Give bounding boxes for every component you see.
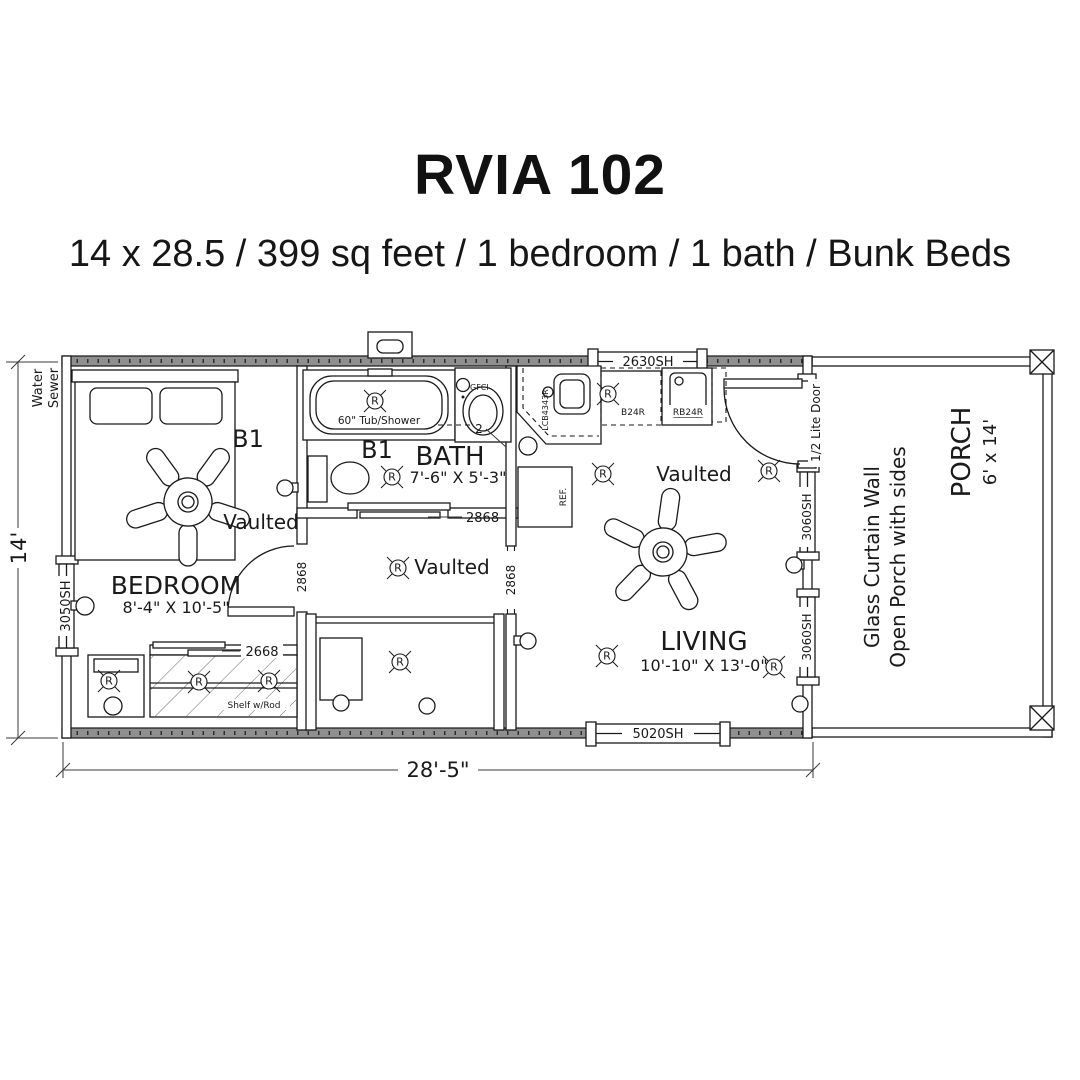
floor-plan-page: RVIA 102 14 x 28.5 / 399 sq feet / 1 bed… (0, 0, 1080, 1080)
bedroom-name: BEDROOM (111, 571, 242, 600)
floor-plan-drawing: 3050SH 2630SH 5020SH (0, 322, 1080, 792)
door-label-porch: 1/2 Lite Door (809, 384, 823, 462)
receptacle-symbol: R (597, 383, 619, 405)
svg-text:R: R (603, 650, 611, 663)
wall-sconce (277, 480, 298, 496)
tub-label: 60" Tub/Shower (338, 415, 421, 427)
window-label-3060sh-lower: 3060SH (800, 613, 814, 660)
refrigerator-label: REF. (559, 488, 569, 507)
living-vaulted-label: Vaulted (656, 462, 731, 486)
door-label-bedroom: 2868 (295, 562, 309, 593)
kitchen-corner-cabinet-label: LCB4343R (541, 389, 550, 431)
window-3060sh-lower: 3060SH (797, 589, 819, 685)
dimension-width: 28'-5" (56, 742, 820, 782)
receptacle-symbol: R (389, 651, 411, 673)
living-opening-label-group: 2868 (503, 554, 518, 606)
door-label-bath: 2868 (466, 511, 499, 526)
svg-text:R: R (394, 562, 402, 575)
svg-text:R: R (765, 465, 773, 478)
dimension-depth: 14' (6, 355, 58, 745)
window-label-3060sh-upper: 3060SH (800, 493, 814, 540)
svg-text:R: R (770, 661, 778, 674)
kitchen-corner-cabinet: LCB4343R (517, 366, 601, 455)
porch-note-line2: Open Porch with sides (886, 446, 910, 667)
svg-text:R: R (604, 388, 612, 401)
receptacle-symbol: R (258, 670, 280, 692)
porch-name: PORCH (947, 407, 977, 498)
bath-vanity (455, 368, 511, 442)
bath-bunk-label: B1 (361, 436, 393, 464)
trailer-hitch (368, 332, 412, 358)
porch-door: 1/2 Lite Door (724, 374, 823, 468)
svg-text:R: R (371, 395, 379, 408)
ceiling-fan (596, 478, 737, 624)
kitchen-cabinet-label: B24R (621, 408, 645, 418)
bath-callout-label: 2 (475, 422, 483, 436)
overall-width-label: 28'-5" (406, 758, 469, 782)
svg-text:R: R (388, 471, 396, 484)
receptacle-symbol: R (596, 645, 618, 667)
gfci-outlet-icon (457, 379, 470, 392)
svg-text:R: R (195, 676, 203, 689)
living-name: LIVING (660, 627, 747, 657)
water-sewer-note: Water Sewer (31, 367, 62, 408)
receptacle-symbol: R (763, 656, 785, 678)
receptacle-symbol: R (188, 671, 210, 693)
porch-post-bottom-right (1030, 706, 1054, 730)
porch-structure (812, 350, 1054, 737)
receptacle-symbol: R (98, 670, 120, 692)
bedroom-bunk-label: B1 (232, 425, 264, 453)
svg-text:R: R (265, 675, 273, 688)
closet-shelf-label: Shelf w/Rod (228, 701, 281, 711)
wall-sconce (792, 696, 808, 712)
door-label-closet: 2668 (245, 645, 278, 660)
porch-post-top-right (1030, 350, 1054, 374)
window-3060sh-upper: 3060SH (797, 464, 819, 560)
window-label-5020sh: 5020SH (632, 727, 683, 742)
wall-sconce (514, 633, 536, 649)
bedroom-desk (88, 655, 144, 717)
page-title: RVIA 102 (0, 142, 1080, 208)
sewer-label: Sewer (47, 367, 62, 408)
middle-room-furniture (320, 638, 435, 714)
bedroom-vaulted-label: Vaulted (223, 510, 298, 534)
kitchen-sink-base: RB24R (662, 368, 726, 425)
receptacle-symbol: R (758, 460, 780, 482)
living-size: 10'-10" X 13'-0" (640, 656, 767, 675)
bath-toilet (308, 456, 369, 502)
page-subtitle: 14 x 28.5 / 399 sq feet / 1 bedroom / 1 … (0, 233, 1080, 276)
svg-text:R: R (599, 468, 607, 481)
wall-sconce (786, 557, 804, 573)
bedroom-size: 8'-4" X 10'-5" (122, 598, 229, 617)
gfci-label: GFCI (470, 383, 489, 392)
kitchen-sink-label: RB24R (673, 408, 703, 418)
receptacle-symbol: R (387, 557, 409, 579)
window-5020sh: 5020SH (586, 722, 730, 746)
receptacle-symbol: R (364, 390, 386, 412)
svg-text:R: R (105, 675, 113, 688)
overall-depth-label: 14' (7, 532, 31, 565)
receptacle-symbol: R (381, 466, 403, 488)
refrigerator: REF. (518, 467, 572, 527)
hallway-vaulted-label: Vaulted (414, 555, 489, 579)
porch-size: 6' x 14' (980, 419, 1001, 485)
receptacle-symbol: R (592, 463, 614, 485)
water-label: Water (31, 368, 46, 407)
door-label-living-opening: 2868 (504, 565, 518, 596)
bath-pocket-door: 2868 (348, 503, 499, 526)
bath-size: 7'-6" X 5'-3" (410, 468, 507, 487)
porch-note-line1: Glass Curtain Wall (860, 466, 884, 648)
svg-text:R: R (396, 656, 404, 669)
